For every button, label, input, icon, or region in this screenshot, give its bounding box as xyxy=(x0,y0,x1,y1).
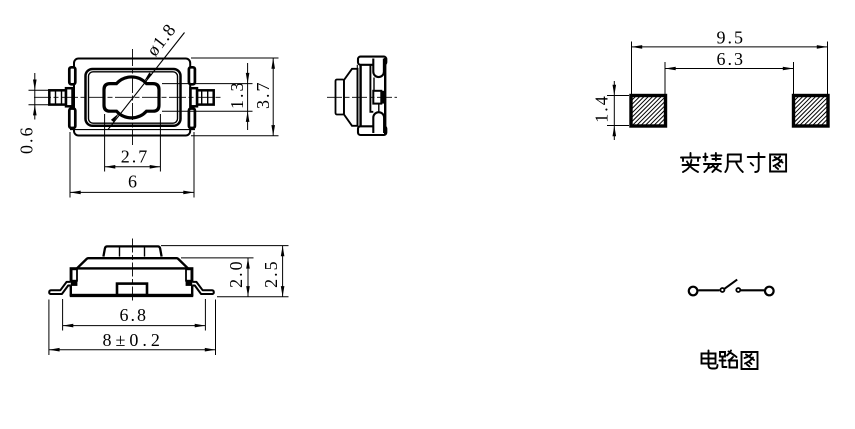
svg-text:3.7: 3.7 xyxy=(253,81,273,110)
svg-text:6.3: 6.3 xyxy=(717,49,746,69)
svg-text:1.4: 1.4 xyxy=(592,94,612,123)
svg-text:1.3: 1.3 xyxy=(227,81,247,110)
svg-text:0.6: 0.6 xyxy=(17,126,37,155)
svg-text:6.8: 6.8 xyxy=(120,305,149,325)
svg-text:2.5: 2.5 xyxy=(261,259,281,288)
svg-text:9.5: 9.5 xyxy=(717,28,746,48)
svg-text:ø1.8: ø1.8 xyxy=(142,20,180,60)
svg-text:6: 6 xyxy=(128,172,137,192)
svg-text:2.7: 2.7 xyxy=(121,147,150,167)
svg-text:8±0.2: 8±0.2 xyxy=(103,330,164,350)
svg-text:2.0: 2.0 xyxy=(226,259,246,288)
